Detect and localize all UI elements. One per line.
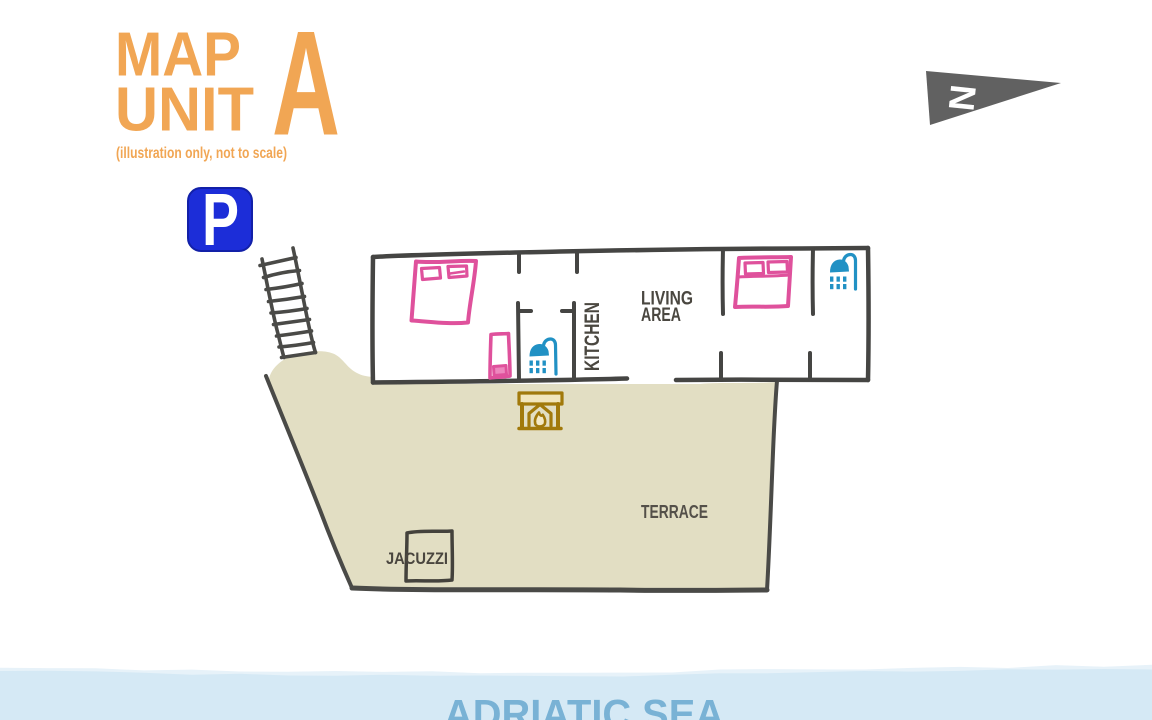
svg-text:AREA: AREA [641, 305, 681, 326]
svg-text:KITCHEN: KITCHEN [581, 302, 604, 371]
svg-text:JACUZZI: JACUZZI [386, 549, 448, 568]
svg-text:P: P [202, 178, 239, 261]
svg-text:ADRIATIC SEA: ADRIATIC SEA [444, 691, 724, 720]
svg-text:UNIT: UNIT [115, 75, 254, 145]
svg-text:(illustration only, not to sca: (illustration only, not to scale) [116, 145, 287, 162]
svg-text:N: N [941, 83, 984, 113]
svg-text:TERRACE: TERRACE [641, 502, 708, 522]
svg-text:A: A [272, 0, 340, 167]
